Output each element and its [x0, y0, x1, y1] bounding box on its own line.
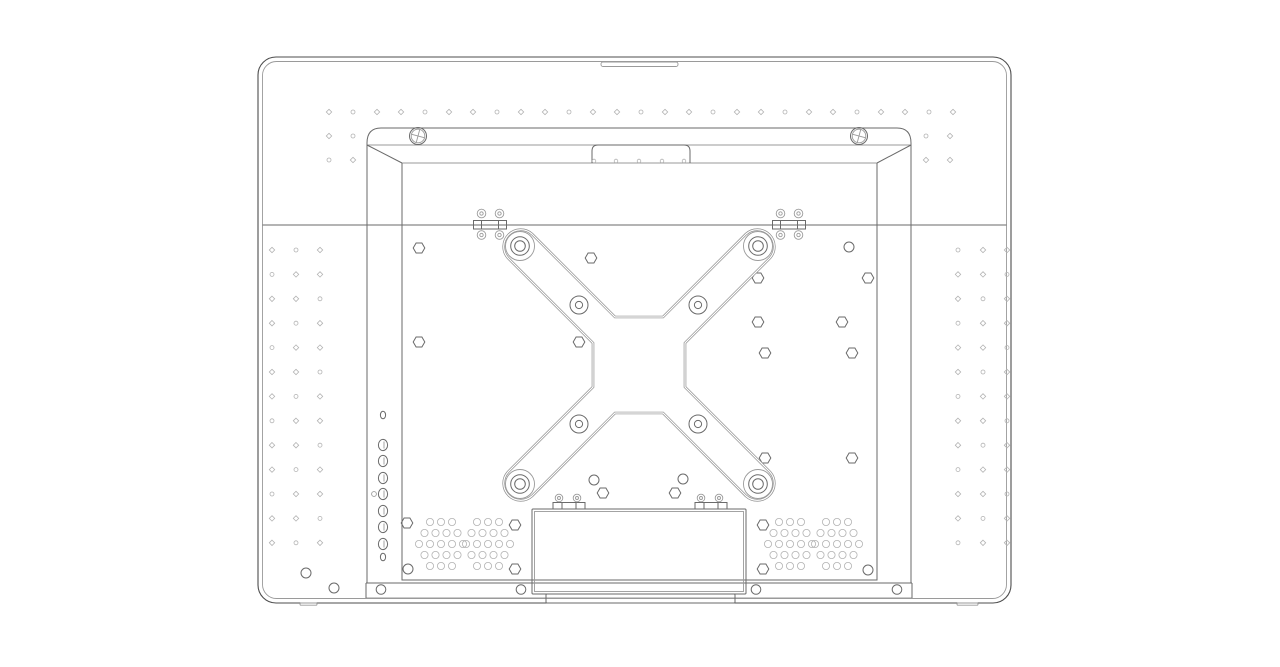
decor-dots — [269, 109, 1009, 545]
top-hinges — [474, 209, 806, 239]
bottom-strip — [366, 583, 912, 598]
rear-view-diagram — [0, 0, 1280, 667]
phillips-cross-icon — [410, 128, 426, 144]
stand-plate — [532, 494, 746, 603]
vesa-bracket — [504, 230, 775, 501]
control-buttons — [372, 411, 388, 561]
outer-case — [258, 57, 1011, 605]
mounting-frame — [367, 128, 911, 583]
vent-holes — [415, 518, 862, 569]
frame-screws — [410, 128, 868, 145]
center-tab — [592, 145, 690, 163]
monitor-rear-technical-drawing — [0, 0, 1280, 667]
phillips-cross-icon — [851, 128, 867, 144]
